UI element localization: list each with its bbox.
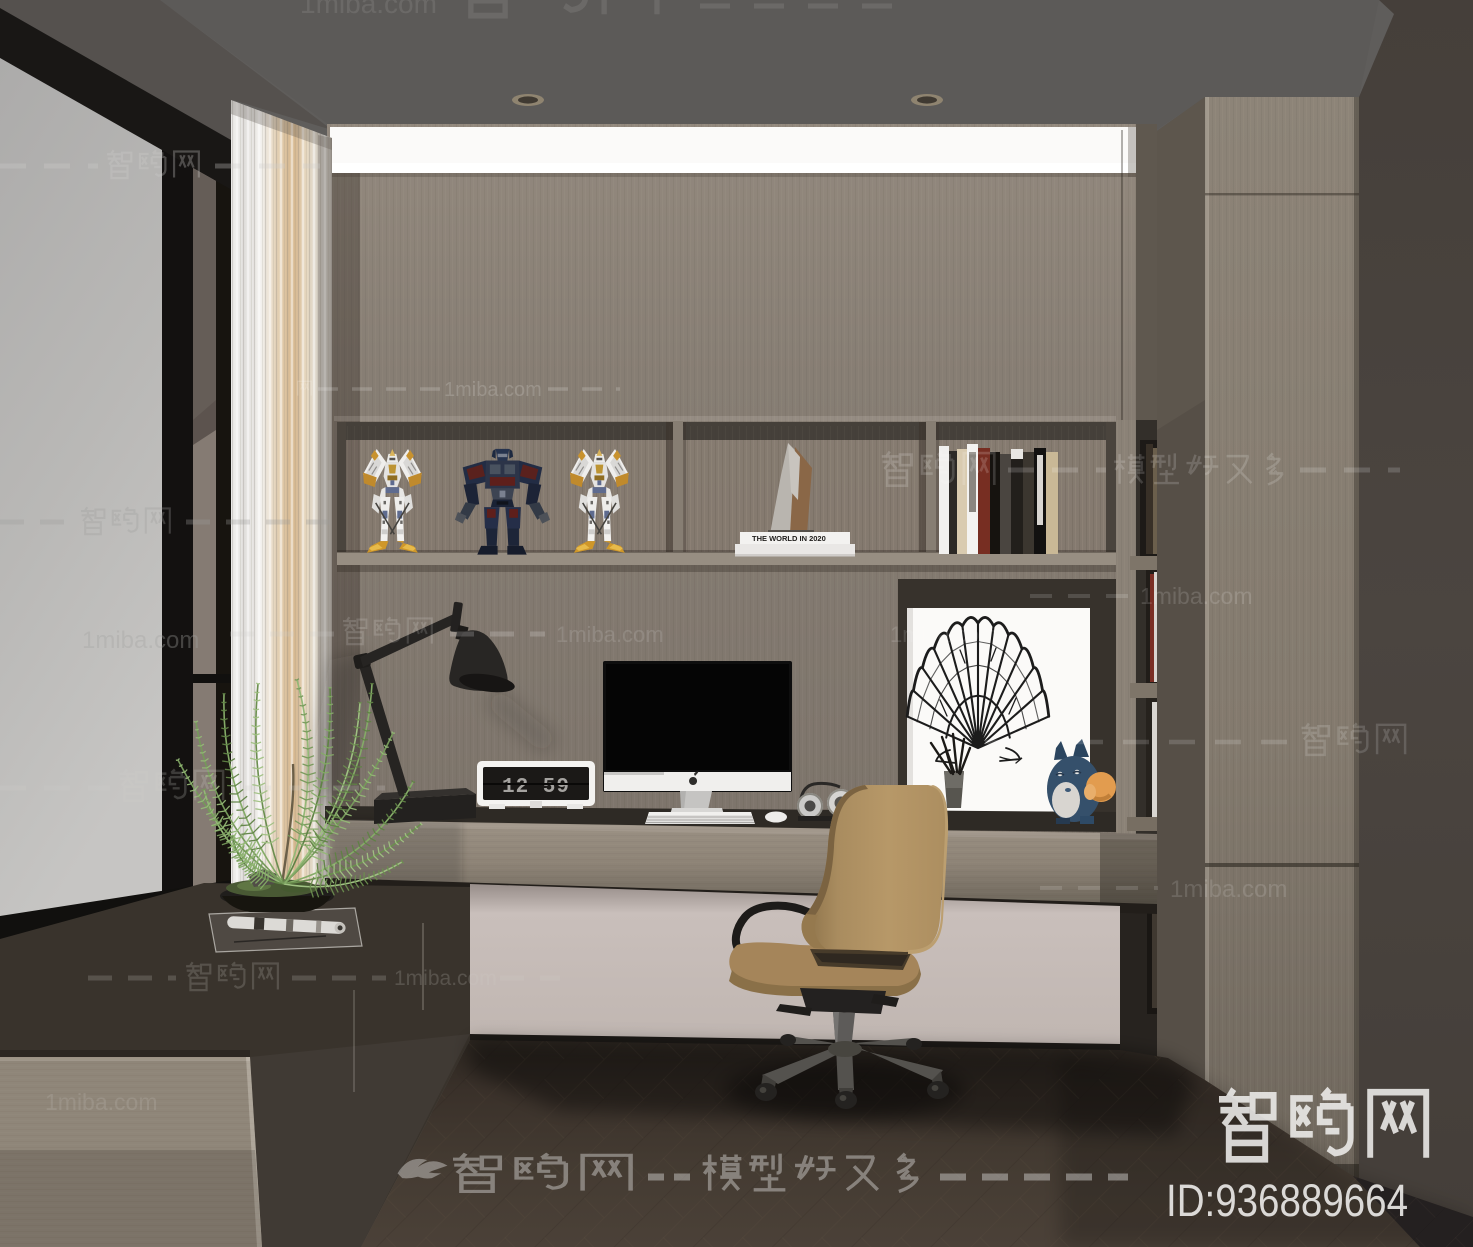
svg-text:ID:936889664: ID:936889664 [1166,1175,1408,1226]
svg-text:1miba.com: 1miba.com [890,622,998,647]
svg-text:1miba.com: 1miba.com [1140,583,1252,609]
svg-text:THE WORLD IN 2020: THE WORLD IN 2020 [752,534,826,543]
svg-text:1miba.com: 1miba.com [556,622,664,647]
svg-text:1miba.com: 1miba.com [1170,876,1287,903]
svg-text:1miba.com: 1miba.com [394,967,497,990]
svg-text:1miba.com: 1miba.com [444,379,542,401]
svg-text:12 59: 12 59 [502,776,570,799]
svg-text:1miba.com: 1miba.com [82,627,199,654]
svg-text:1miba.com: 1miba.com [45,1089,157,1115]
svg-text:1miba.com: 1miba.com [300,0,437,19]
